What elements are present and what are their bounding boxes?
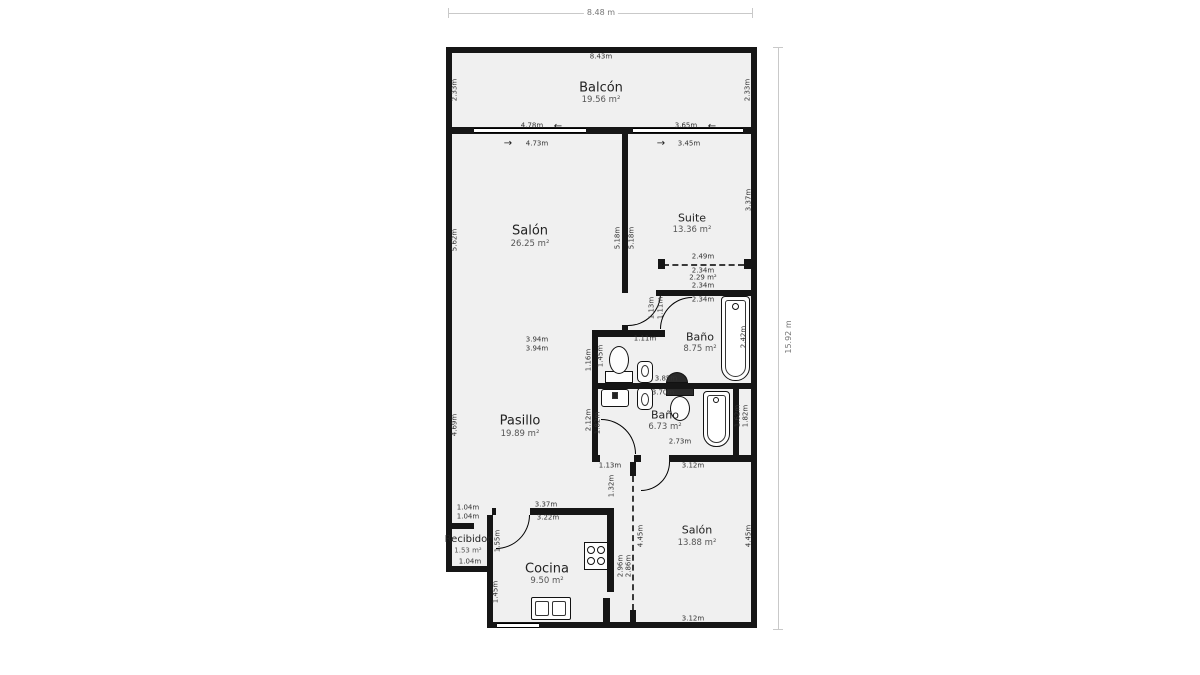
dim-label: 2.29 m²: [689, 275, 716, 282]
dim-label: 1.55m: [495, 530, 502, 552]
dim-label: 5.18m: [615, 227, 622, 249]
salon-virtual-boundary: [632, 476, 634, 610]
room-label-bano1: Baño: [686, 332, 714, 343]
door-opening: [496, 508, 530, 515]
dim-label: 1.04m: [459, 559, 481, 566]
wall: [446, 523, 474, 529]
room-label-recibidor: Recibidor: [445, 535, 492, 545]
room-label-salon: Salón: [512, 225, 548, 238]
room-label-cocina: Cocina: [525, 563, 569, 576]
right-dimension-tick: [773, 47, 783, 48]
dim-label: 1.04m: [457, 505, 479, 512]
dim-label: 4.73m: [526, 141, 548, 148]
room-area-bano1: 8.75 m²: [683, 345, 716, 354]
room-area-cocina: 9.50 m²: [530, 577, 563, 586]
wall: [751, 47, 757, 133]
dim-label: 1.82m: [595, 412, 602, 434]
stove-burner-icon: [587, 557, 595, 565]
toilet-icon: [609, 346, 629, 374]
dim-label: 1.04m: [457, 514, 479, 521]
dim-label: 2.49m: [692, 254, 714, 261]
dim-label: 1.13m: [599, 463, 621, 470]
wall: [607, 508, 614, 592]
slide-arrow-right-icon: →: [504, 139, 512, 149]
dim-label: 3.45m: [678, 141, 700, 148]
dim-label: 3.70m: [652, 390, 674, 397]
wall: [446, 127, 452, 572]
dim-label: 1.45m: [598, 345, 605, 367]
dim-label: 5.62m: [452, 229, 459, 251]
wall: [630, 610, 636, 622]
dim-label: 1.45m: [493, 581, 500, 603]
wall: [446, 566, 493, 572]
stove-burner-icon: [597, 557, 605, 565]
top-dimension-tick: [752, 8, 753, 18]
dim-label: 3.12m: [682, 463, 704, 470]
wall: [744, 259, 751, 269]
dim-label: 4.45m: [746, 525, 753, 547]
bidet-icon: [637, 361, 653, 383]
stove-burner-icon: [587, 546, 595, 554]
dim-label: 2.34m: [692, 283, 714, 290]
dim-label: 3.85m: [655, 376, 677, 383]
dim-label: 2.86m: [626, 555, 633, 577]
dim-label: 3.94m: [526, 346, 548, 353]
wall: [630, 462, 636, 476]
dim-label: 4.69m: [452, 414, 459, 436]
room-area-recibidor: 1.53 m²: [454, 548, 481, 555]
window: [497, 623, 539, 628]
sink-icon: [601, 389, 629, 407]
dim-label: 5.18m: [629, 227, 636, 249]
right-dimension-line: [778, 47, 779, 630]
dim-label: 2.96m: [618, 555, 625, 577]
bidet-icon: [637, 387, 653, 410]
dim-label: 2.34m: [692, 297, 714, 304]
room-area-bano2: 6.73 m²: [648, 423, 681, 432]
dim-label: 3.37m: [746, 189, 753, 211]
room-label-suite: Suite: [678, 213, 706, 224]
stove-burner-icon: [597, 546, 605, 554]
dim-label: 1.32m: [609, 475, 616, 497]
slide-arrow-right-icon: →: [657, 139, 665, 149]
top-dimension-tick: [448, 8, 449, 18]
slide-arrow-left-icon: ←: [554, 122, 562, 132]
dim-label: 3.12m: [682, 616, 704, 623]
door-opening: [641, 455, 669, 462]
dim-label: 8.43m: [590, 54, 612, 61]
dim-label: 2.42m: [741, 326, 748, 348]
room-label-balcon: Balcón: [579, 82, 623, 95]
dim-label: 1.11m: [634, 336, 656, 343]
wall: [622, 133, 628, 293]
dim-label: 1.62m: [735, 405, 742, 427]
room-area-balcon: 19.56 m²: [582, 96, 621, 105]
slide-arrow-left-icon: ←: [708, 122, 716, 132]
dim-label: 1.13m: [649, 297, 656, 319]
dim-label: 2.33m: [745, 79, 752, 101]
dim-label: 4.45m: [638, 525, 645, 547]
room-area-salon2: 13.88 m²: [678, 539, 717, 548]
overall-height-label: 15.92 m: [784, 317, 794, 356]
dim-label: 1.11m: [658, 297, 665, 319]
dim-label: 2.12m: [586, 409, 593, 431]
dim-label: 1.16m: [586, 349, 593, 371]
overall-width-label: 8.48 m: [584, 8, 618, 18]
right-dimension-tick: [773, 629, 783, 630]
wall: [658, 259, 665, 269]
room-label-pasillo: Pasillo: [500, 415, 541, 428]
floor-plan-canvas: 8.48 m 15.92 m: [0, 0, 1200, 675]
dim-label: 3.94m: [526, 337, 548, 344]
room-area-suite: 13.36 m²: [673, 226, 712, 235]
room-area-salon: 26.25 m²: [511, 240, 550, 249]
dim-label: 2.33m: [452, 79, 459, 101]
dim-label: 4.78m: [521, 123, 543, 130]
room-label-bano2: Baño: [651, 410, 679, 421]
dim-label: 3.65m: [675, 123, 697, 130]
dim-label: 1.82m: [743, 405, 750, 427]
bathtub-drain-icon: [732, 303, 739, 310]
bathtub-drain-icon: [713, 397, 719, 403]
room-area-pasillo: 19.89 m²: [501, 430, 540, 439]
dim-label: 3.22m: [537, 515, 559, 522]
room-label-salon2: Salón: [682, 525, 712, 536]
kitchen-sink-icon: [531, 597, 571, 620]
dim-label: 2.73m: [669, 439, 691, 446]
dim-label: 3.37m: [535, 502, 557, 509]
wall: [603, 598, 610, 622]
